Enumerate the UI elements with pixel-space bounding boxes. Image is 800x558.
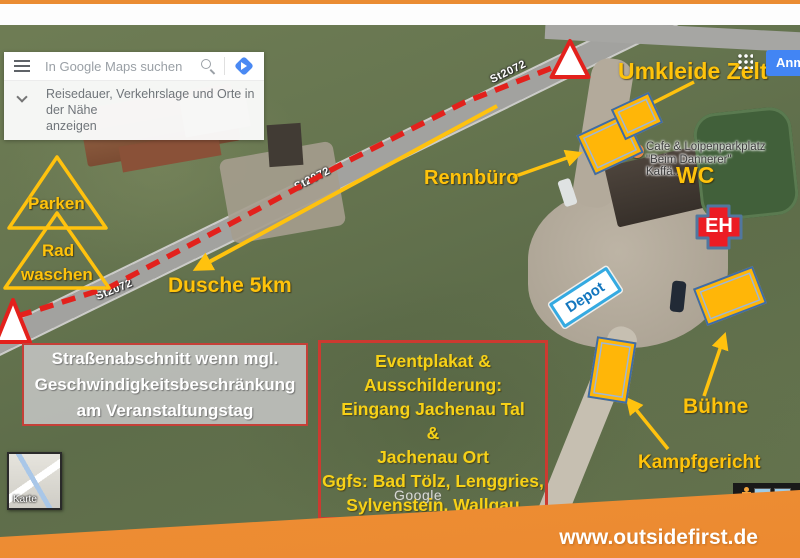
suggestion-line2: anzeigen [46, 118, 256, 134]
road-restriction-line3: am Veranstaltungstag [24, 398, 306, 424]
menu-icon[interactable] [14, 60, 30, 62]
label-rad: Rad [42, 241, 74, 261]
label-parken: Parken [28, 194, 85, 214]
signin-button[interactable]: Anmelden [766, 50, 800, 76]
directions-icon[interactable] [234, 56, 254, 76]
search-panel: Reisedauer, Verkehrslage und Orte in der… [4, 52, 264, 140]
event-signage-line5: Jachenau Ort [321, 445, 545, 469]
event-signage-line1: Eventplakat & [321, 349, 545, 373]
event-signage-line3: Eingang Jachenau Tal [321, 397, 545, 421]
imagery-thumbnail-1[interactable] [754, 488, 771, 501]
event-signage-line4: & [321, 421, 545, 445]
screenshot-root: St2072 St2072 St2072 Cafe & Loipenparkpl… [0, 0, 800, 558]
minimap-label: Karte [13, 494, 37, 505]
minimap-toggle[interactable]: Karte [7, 452, 62, 510]
search-bar[interactable] [4, 52, 264, 80]
event-signage-box: Eventplakat & Ausschilderung: Eingang Ja… [318, 340, 548, 520]
chevron-down-icon[interactable] [16, 91, 27, 102]
suggestion-line1: Reisedauer, Verkehrslage und Orte in der… [46, 86, 256, 118]
google-apps-icon[interactable] [737, 53, 753, 69]
road-restriction-box: Straßenabschnitt wenn mgl. Geschwindigke… [22, 343, 308, 426]
footer-url: www.outsidefirst.de [559, 526, 758, 550]
label-dusche-5km: Dusche 5km [168, 274, 292, 298]
search-icon[interactable] [201, 59, 216, 74]
road-restriction-line2: Geschwindigkeitsbeschränkung [24, 372, 306, 398]
suggestion-row[interactable]: Reisedauer, Verkehrslage und Orte in der… [4, 80, 264, 140]
label-kampfgericht: Kampfgericht [638, 452, 760, 474]
search-input[interactable] [43, 58, 201, 75]
road-restriction-line1: Straßenabschnitt wenn mgl. [24, 346, 306, 372]
shed [267, 123, 304, 167]
event-signage-line7: Sylvenstein, Wallgau [321, 493, 545, 517]
cafe-poi-line1: Cafe & Loipenparkplatz [646, 141, 766, 154]
label-waschen: waschen [21, 265, 93, 285]
label-rennbuero: Rennbüro [424, 167, 518, 190]
top-white-strip [0, 4, 800, 25]
imagery-thumbnail-2[interactable] [774, 488, 791, 501]
label-wc: WC [676, 162, 714, 189]
streetview-bar [733, 483, 800, 505]
pegman-icon[interactable] [742, 487, 751, 501]
event-signage-line6: Ggfs: Bad Tölz, Lenggries, [321, 469, 545, 493]
search-divider [224, 57, 225, 75]
first-aid-label: EH [702, 215, 736, 238]
event-signage-line2: Ausschilderung: [321, 373, 545, 397]
label-buehne: Bühne [683, 395, 748, 419]
